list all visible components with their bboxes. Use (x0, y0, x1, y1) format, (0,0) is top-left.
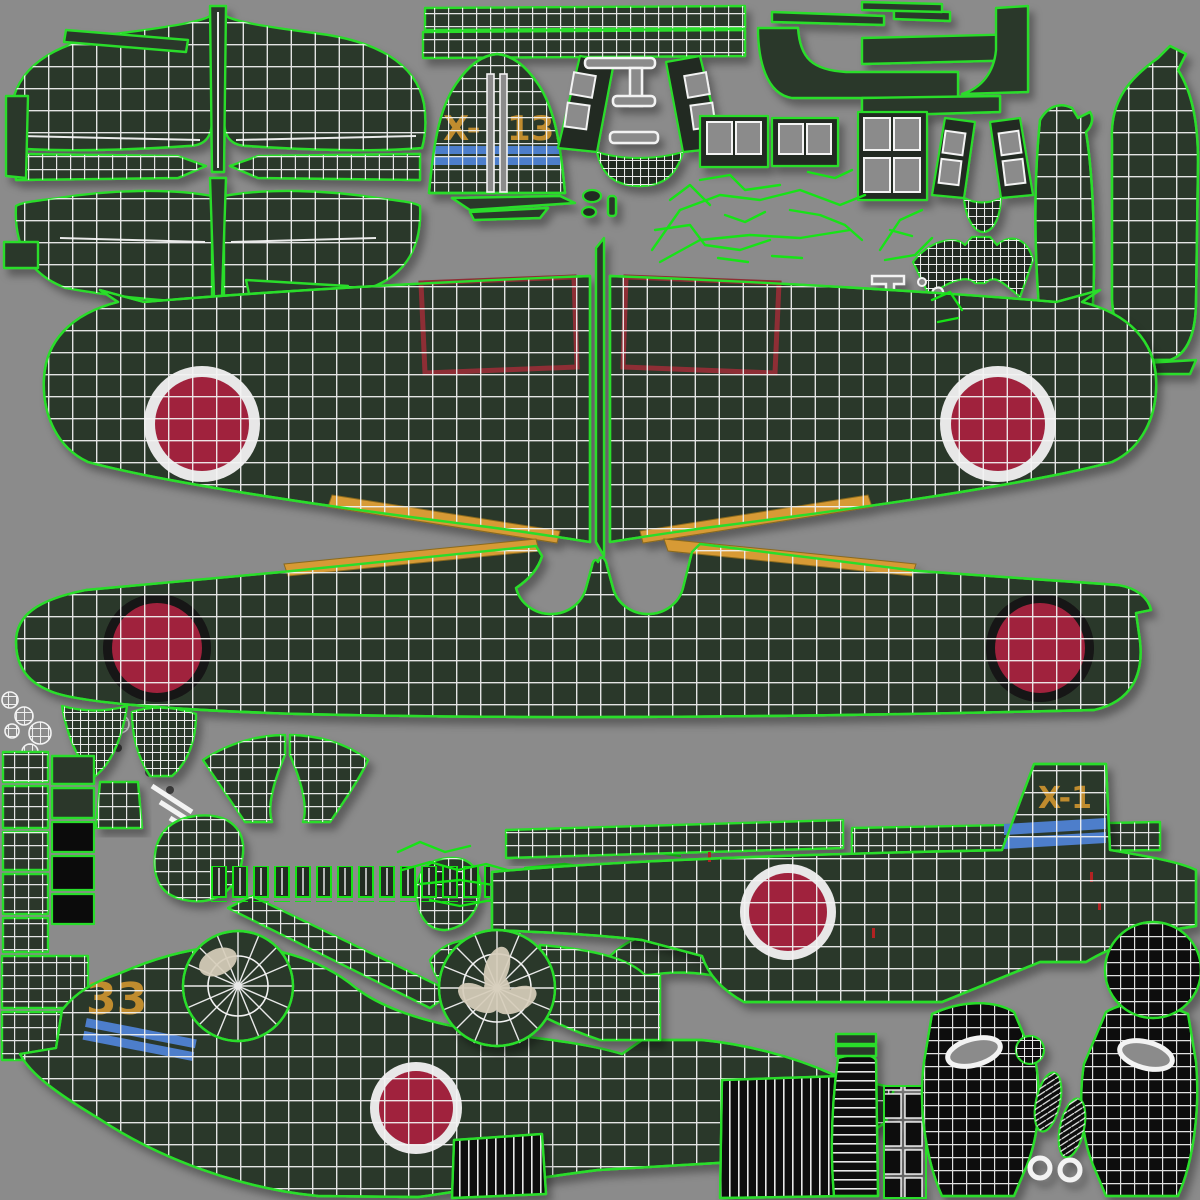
uv-island-wing-lower (16, 539, 1151, 717)
canopy-window-grid (858, 112, 927, 200)
wheel-cover-left (922, 1003, 1039, 1196)
rudder-hinge-strip (500, 74, 507, 192)
uv-island-horizontal-stabilizer (4, 6, 425, 326)
wing-upper-right (610, 276, 1156, 543)
rudder-hinge-strip (487, 74, 494, 192)
wing-upper-left (44, 276, 590, 543)
canopy-window-frame (700, 116, 838, 167)
uv-texture-atlas: X- 133 (0, 0, 1200, 1200)
wheel-cover-right (1081, 1003, 1197, 1196)
windshield-frame-2 (932, 118, 1033, 232)
wheel-ring (1030, 1158, 1050, 1178)
wheel-ring (1060, 1160, 1080, 1180)
spinner-dome (1105, 922, 1200, 1018)
wheel-well-fan (183, 931, 293, 1041)
canopy-collar (913, 237, 1033, 297)
atlas-canvas: X- 133 (0, 0, 1200, 1200)
cowl-arch (203, 735, 368, 822)
